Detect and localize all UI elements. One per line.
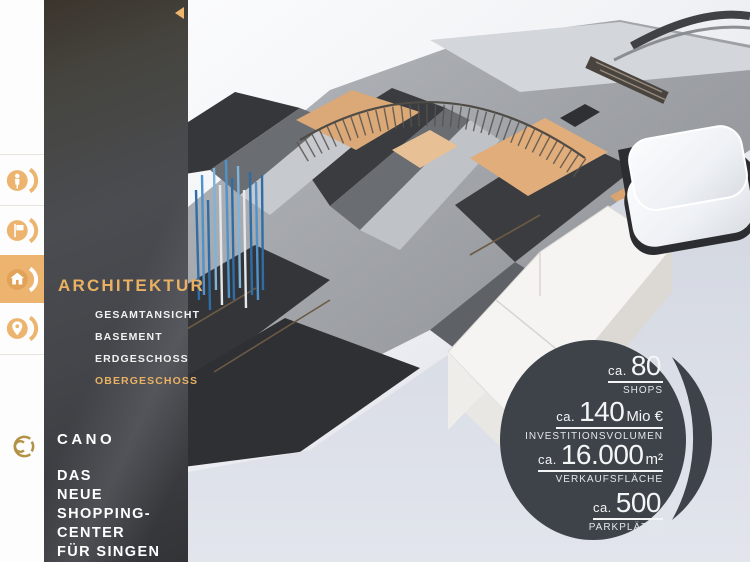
menu-item-erdgeschoss[interactable]: ERDGESCHOSS [95, 353, 189, 365]
nav-item-visitors[interactable] [0, 154, 44, 205]
stat-number: 500 [616, 487, 661, 518]
brand-name: CANO [57, 431, 115, 448]
stat-suffix: Mio € [626, 408, 663, 425]
stat-number: 80 [631, 350, 661, 381]
brand-subtitle-line: SHOPPING- [57, 505, 160, 524]
stat-shops: ca.80 SHOPS [608, 352, 663, 396]
nav-item-location[interactable] [0, 303, 44, 355]
brand-subtitle-line: NEUE [57, 486, 160, 505]
brand-subtitle: DAS NEUE SHOPPING- CENTER FÜR SINGEN [57, 467, 160, 562]
brand-subtitle-line: DAS [57, 467, 160, 486]
menu-item-basement[interactable]: BASEMENT [95, 331, 163, 343]
stat-number: 140 [579, 396, 624, 427]
stat-prefix: ca. [538, 452, 557, 467]
cano-logo-icon [8, 432, 37, 461]
visitors-icon [4, 166, 40, 195]
stat-prefix: ca. [556, 409, 575, 424]
stat-investment-value: ca.140Mio € [556, 398, 663, 429]
location-pin-icon [4, 314, 40, 343]
brand-subtitle-line: FÜR SINGEN [57, 543, 160, 562]
stat-shops-value: ca.80 [608, 352, 663, 383]
architecture-house-icon [4, 265, 40, 294]
stat-label: PARKPLÄTZE [589, 522, 663, 533]
menu-section-architektur[interactable]: ARCHITEKTUR [58, 276, 205, 296]
collapse-left-triangle-icon[interactable] [175, 7, 184, 19]
stat-suffix: m² [646, 451, 664, 468]
stat-sales-area: ca.16.000m² VERKAUFSFLÄCHE [538, 441, 663, 485]
menu-item-gesamtansicht[interactable]: GESAMTANSICHT [95, 309, 200, 321]
stat-parking: ca.500 PARKPLÄTZE [589, 489, 663, 533]
sidebar-panel: ARCHITEKTUR GESAMTANSICHT BASEMENT ERDGE… [44, 0, 188, 562]
stat-prefix: ca. [608, 363, 627, 378]
stat-sales-area-value: ca.16.000m² [538, 441, 663, 472]
stat-prefix: ca. [593, 500, 612, 515]
menu-item-obergeschoss[interactable]: OBERGESCHOSS [95, 375, 198, 387]
nav-item-architektur[interactable] [0, 255, 44, 303]
stat-number: 16.000 [561, 439, 644, 470]
stat-investment: ca.140Mio € INVESTITIONSVOLUMEN [525, 398, 663, 442]
stat-label: SHOPS [608, 385, 663, 396]
stat-parking-value: ca.500 [593, 489, 663, 520]
brand-subtitle-line: CENTER [57, 524, 160, 543]
nav-item-flag[interactable] [0, 205, 44, 255]
stat-label: VERKAUFSFLÄCHE [538, 474, 663, 485]
cano-app: ca.80 SHOPS ca.140Mio € INVESTITIONSVOLU… [0, 0, 750, 562]
flag-icon [4, 216, 40, 245]
icon-rail [0, 0, 44, 562]
